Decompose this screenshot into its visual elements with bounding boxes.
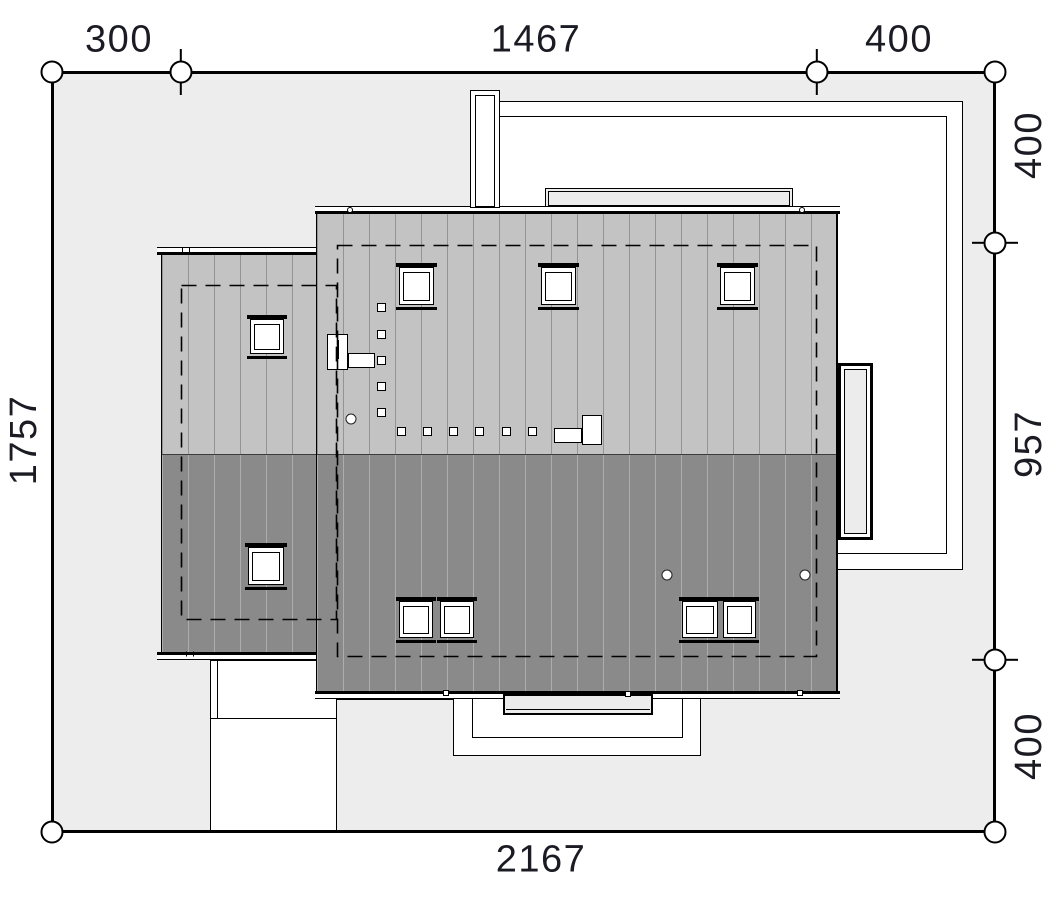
boundary-corner-marker [41,821,64,844]
roof-step [377,356,386,365]
site-plan-canvas: 300146740040095740017572167 [0,0,1060,905]
entrance-canopy-line [506,709,650,710]
roof-vent [346,414,357,425]
roof-step [377,408,386,417]
gutter-outlet [625,691,631,697]
wing-roof-eave-top [157,247,317,255]
roof-window-frame [723,601,756,638]
roof-vent [800,570,811,581]
chimney-tall [470,90,500,208]
roof-window-frame [541,267,576,305]
dim-right-400b: 400 [1010,712,1048,780]
roof-step [377,382,386,391]
gutter-outlet [797,690,803,696]
roof-window-glass [254,324,280,350]
roof-window [399,263,434,310]
roof-window [720,263,755,310]
flat-roof-extension-inner [548,191,790,206]
roof-window-frame [248,547,284,585]
roof-step [502,427,511,436]
roof-window [541,263,576,310]
wing-roof-eave-bottom [157,652,317,660]
dimension-marker [806,61,829,84]
roof-window-sill-flashing [717,307,758,310]
roof-window-frame [399,267,434,305]
roof-window-glass [545,272,572,301]
dimension-marker [984,232,1007,255]
wing-roof [161,255,316,652]
roof-window-frame [440,601,474,638]
roof-window-glass [403,272,430,301]
dimension-marker [984,649,1007,672]
roof-chimney-left-flue [337,340,339,359]
roof-window [723,597,756,643]
dim-top-1467: 1467 [491,20,582,58]
driveway-divider-line [211,718,336,719]
eave-mark [186,652,194,657]
roof-window-frame [250,319,284,354]
roof-window-sill-flashing [245,587,287,590]
entrance-canopy [503,694,653,715]
roof-window [440,597,474,643]
roof-step [423,427,432,436]
eave-dot [799,207,805,213]
roof-step [528,427,537,436]
dim-left-1757: 1757 [5,395,43,486]
roof-window-sill-flashing [679,640,721,643]
roof-window-frame [399,601,433,638]
roof-window-sill-flashing [396,640,436,643]
dim-bottom-2167: 2167 [496,840,587,878]
roof-window-frame [682,601,718,638]
driveway-edge-line [217,661,218,718]
boundary-corner-marker [984,821,1007,844]
boundary-corner-marker [41,61,64,84]
eave-mark [182,248,190,253]
bay-window-glazing [844,369,867,534]
dim-top-300: 300 [85,20,153,58]
dim-top-400: 400 [865,20,933,58]
roof-step [397,427,406,436]
dim-right-400a: 400 [1010,111,1048,179]
roof-window-glass [724,272,751,301]
wing-roof-south-slope [162,454,316,652]
roof-window-glass [252,552,280,581]
gutter-outlet [443,690,449,696]
bay-window [838,363,873,540]
roof-window-glass [403,606,429,634]
roof-window-glass [686,606,714,634]
roof-window-sill-flashing [247,356,287,359]
dim-right-957: 957 [1010,410,1048,478]
eave-dot [347,207,353,213]
roof-chimney-left [327,334,348,370]
roof-window-glass [444,606,470,634]
dimension-marker [170,61,193,84]
main-roof [316,214,838,691]
chimney-tall-flue [475,95,495,207]
main-roof-north-slope [317,214,836,455]
roof-step [377,330,386,339]
roof-window-sill-flashing [437,640,477,643]
roof-window-sill-flashing [538,307,579,310]
roof-step [377,303,386,312]
roof-chimney-center [582,415,602,445]
roof-window [682,597,718,643]
roof-step [475,427,484,436]
roof-window-sill-flashing [396,307,437,310]
roof-vent [662,570,673,581]
roof-window-sill-flashing [720,640,759,643]
roof-chimney-center-base [554,428,582,443]
main-roof-south-slope [317,454,836,691]
roof-window-frame [720,267,755,305]
roof-chimney-left-base [348,353,375,368]
roof-window [248,543,284,590]
boundary-corner-marker [984,61,1007,84]
roof-window [250,315,284,359]
wing-roof-north-slope [162,255,316,455]
roof-window [399,597,433,643]
main-roof-eave-top [315,206,840,214]
roof-step [449,427,458,436]
walkway-line [337,699,453,700]
roof-window-glass [727,606,752,634]
